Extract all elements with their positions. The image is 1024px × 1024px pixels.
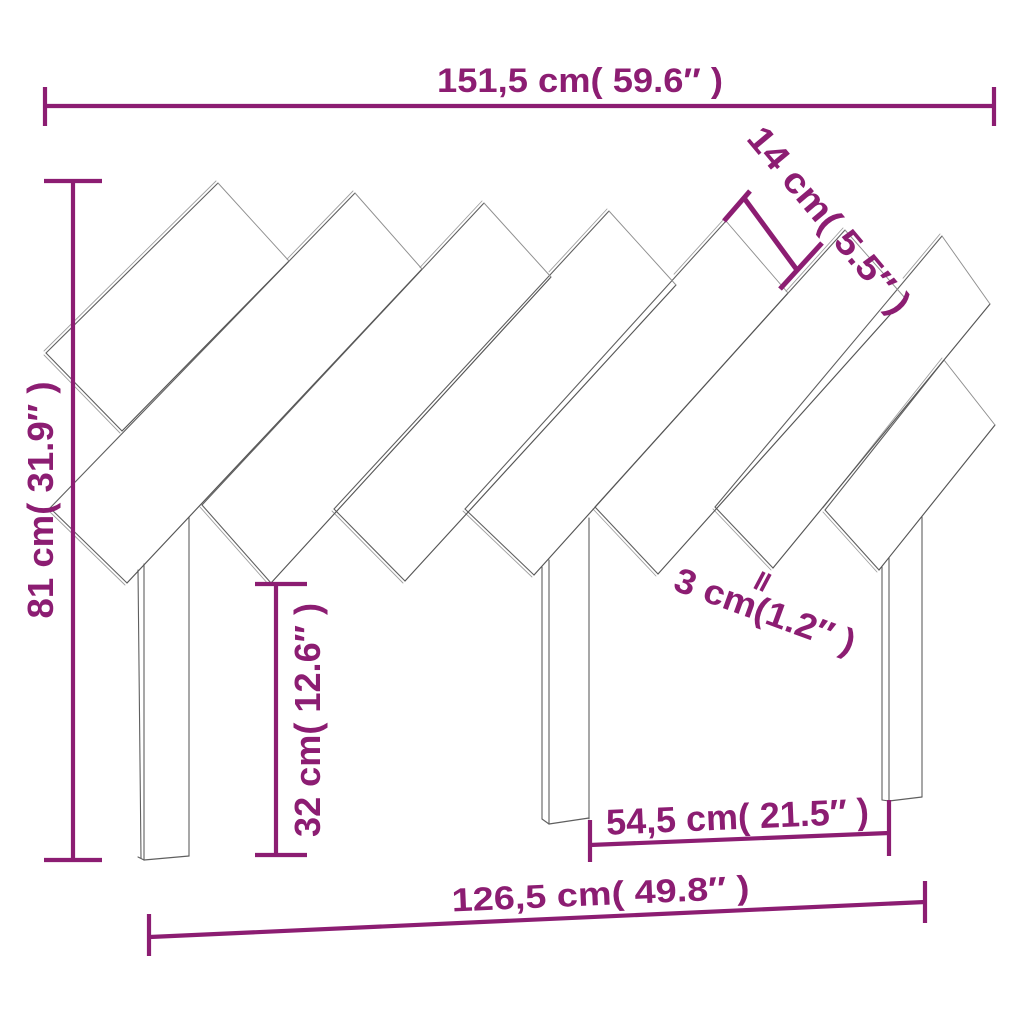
svg-text:3 cm(1.2″ ): 3 cm(1.2″ ) [669, 560, 861, 662]
svg-text:81 cm( 31.9″ ): 81 cm( 31.9″ ) [20, 382, 61, 619]
svg-text:32 cm( 12.6″ ): 32 cm( 12.6″ ) [287, 603, 328, 837]
svg-text:151,5 cm( 59.6″ ): 151,5 cm( 59.6″ ) [437, 62, 723, 100]
svg-text:14 cm( 5.5″ ): 14 cm( 5.5″ ) [739, 118, 920, 322]
